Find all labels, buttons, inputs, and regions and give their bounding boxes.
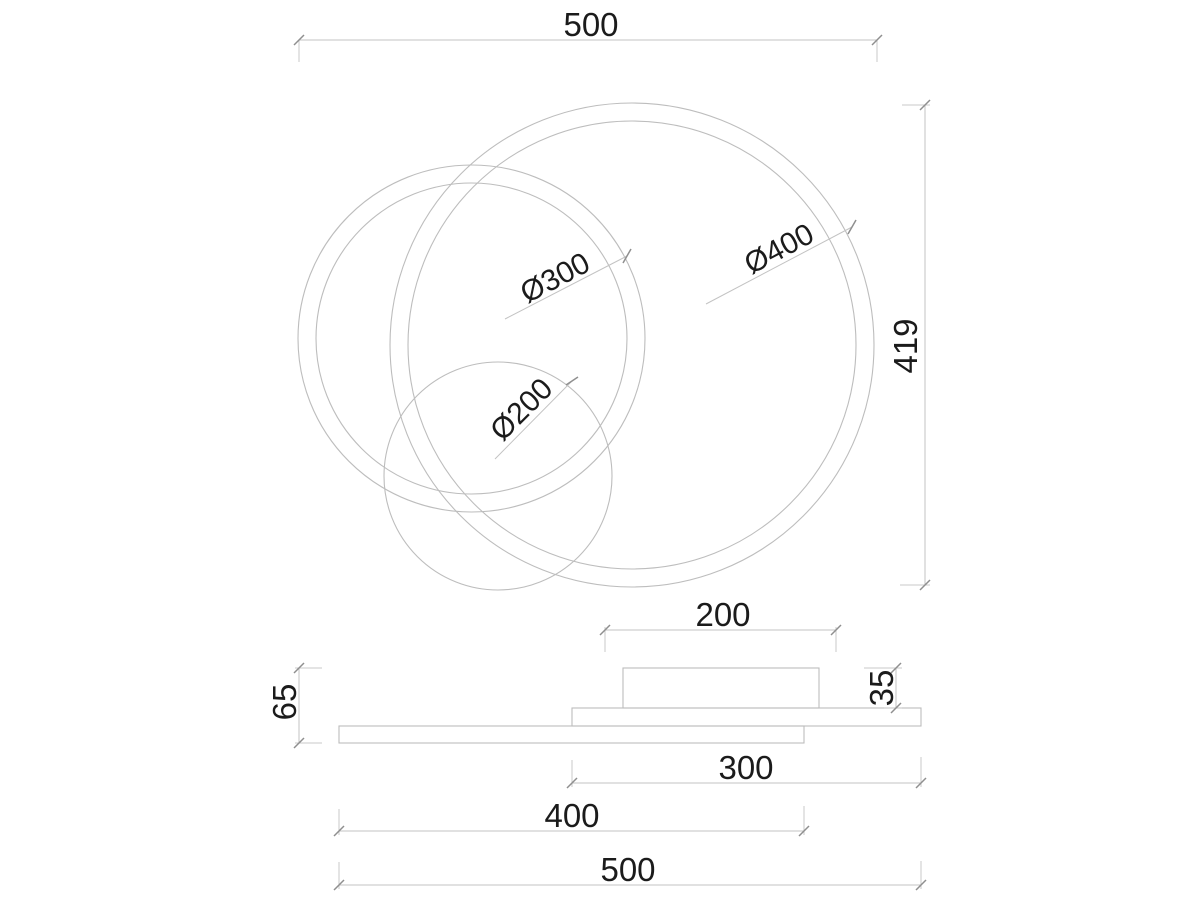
- ring-300-inner-circle: [316, 183, 627, 494]
- dim-label-canopy-height: 35: [863, 670, 900, 707]
- canopy-box: [623, 668, 819, 708]
- dim-upper-plate-width: 300: [567, 749, 926, 788]
- drawing-canvas: 500 419 Ø400 Ø300 Ø200: [0, 0, 1200, 900]
- dim-label-upper-plate-width: 300: [718, 749, 773, 786]
- dim-label-canopy-width: 200: [695, 596, 750, 633]
- dim-canopy-width: 200: [600, 596, 841, 652]
- dim-label-side-width: 500: [600, 851, 655, 888]
- dia-label-300: Ø300: [515, 246, 595, 310]
- dim-side-overall-width: 500: [334, 851, 926, 890]
- label-diameter-300: Ø300: [505, 246, 631, 319]
- dim-label-overall-height: 419: [887, 318, 924, 373]
- leader-tick: [848, 220, 856, 234]
- ring-400-inner-circle: [408, 121, 856, 569]
- dia-label-400: Ø400: [739, 217, 819, 281]
- dim-side-overall-height: 65: [266, 663, 322, 748]
- top-view: 500 419 Ø400 Ø300 Ø200: [294, 6, 930, 590]
- side-view: 200 35 65 300: [266, 596, 926, 890]
- dim-lower-plate-width: 400: [334, 797, 809, 836]
- leader-tick: [566, 377, 578, 385]
- ring-400-outer-circle: [390, 103, 874, 587]
- label-diameter-200: Ø200: [484, 372, 578, 459]
- dia-label-200: Ø200: [484, 372, 559, 447]
- dim-label-lower-plate-width: 400: [544, 797, 599, 834]
- dim-top-overall-width: 500: [294, 6, 882, 62]
- dim-label-side-height: 65: [266, 684, 303, 721]
- technical-drawing: 500 419 Ø400 Ø300 Ø200: [0, 0, 1200, 900]
- label-diameter-400: Ø400: [706, 217, 856, 304]
- dim-right-overall-height: 419: [887, 100, 930, 590]
- dim-canopy-height: 35: [863, 663, 902, 713]
- ring-300-outer-circle: [298, 165, 645, 512]
- dim-label-top-width: 500: [563, 6, 618, 43]
- upper-plate: [572, 708, 921, 726]
- lower-plate: [339, 726, 804, 743]
